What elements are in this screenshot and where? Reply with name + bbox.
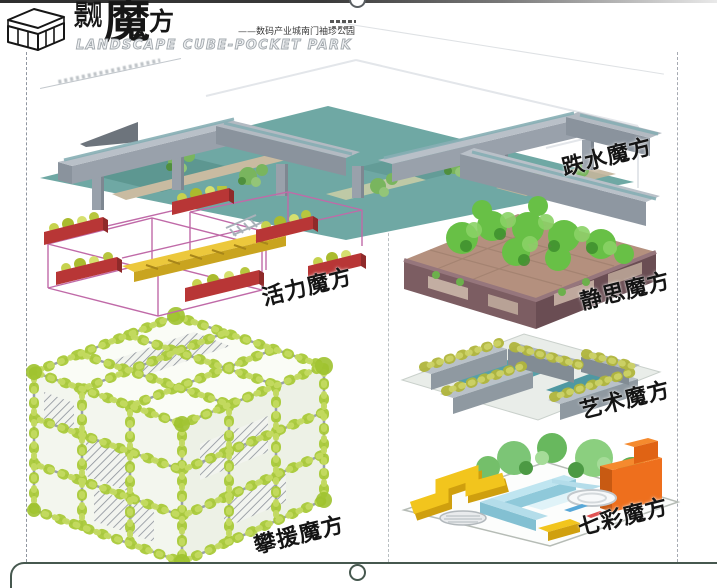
- logo-text-fang: 方: [149, 2, 174, 38]
- vitality-cube-illustration: [30, 186, 378, 318]
- small-annotation-mark-2: [332, 26, 352, 29]
- logo-cube-icon: [4, 6, 68, 52]
- logo-wordmark: 景观 魔 方: [74, 2, 174, 41]
- panel-divider-middle: [388, 198, 389, 562]
- logo-text-prefix: 景观: [74, 0, 100, 34]
- small-annotation-mark: [330, 20, 356, 23]
- rainbow-cube-illustration: [396, 424, 686, 558]
- logo-text-magic: 魔: [104, 2, 148, 41]
- binder-hole-top: [349, 0, 366, 8]
